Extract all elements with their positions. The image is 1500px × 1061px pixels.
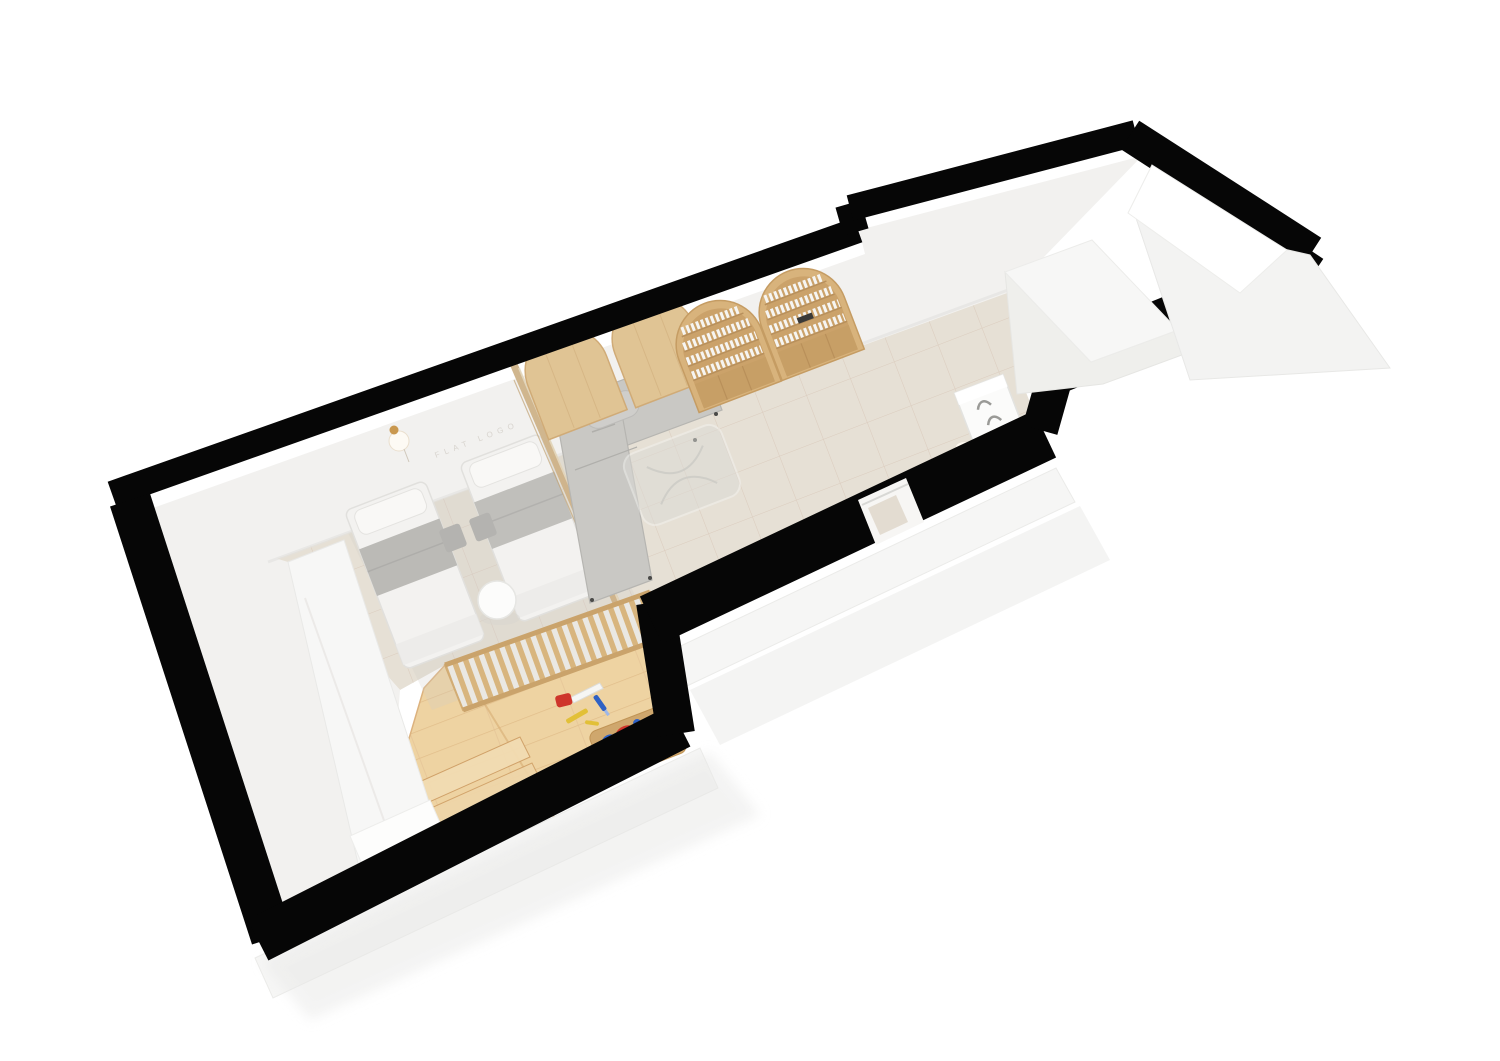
lamp-cap (390, 426, 399, 435)
floorplan-render: FLAT LOGO (0, 0, 1500, 1061)
